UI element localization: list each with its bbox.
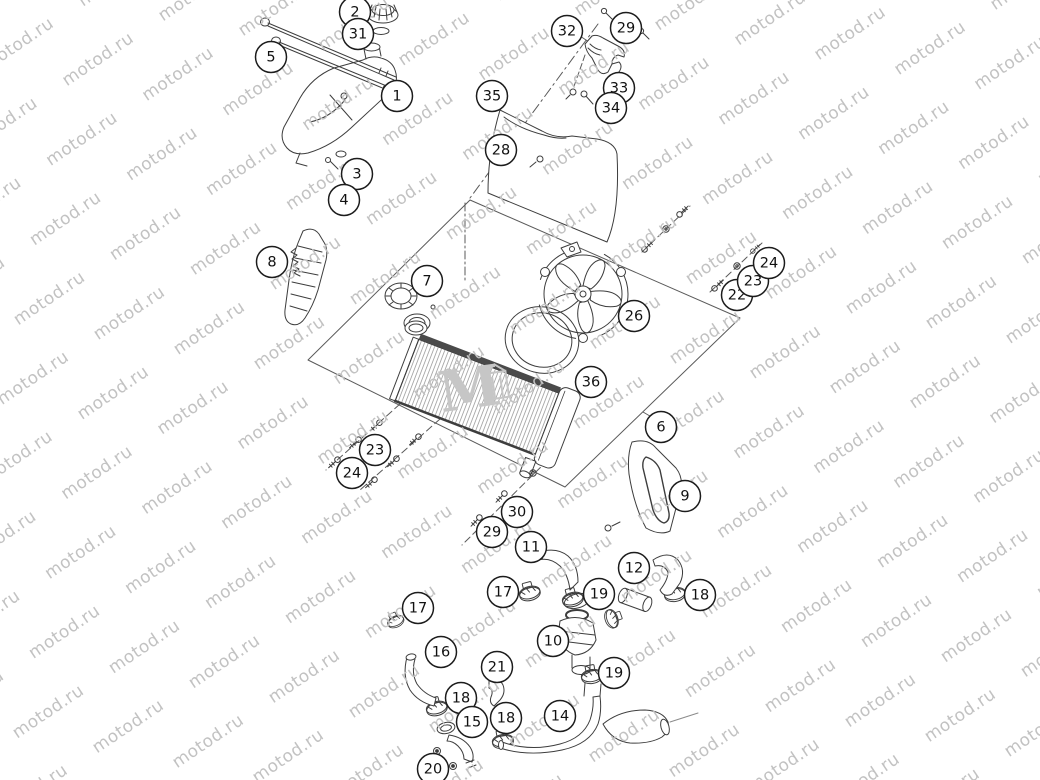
watermark-text: motod.ru: [26, 188, 105, 250]
watermark-text: motod.ru: [74, 362, 153, 424]
watermark-text: motod.ru: [0, 427, 57, 489]
callout-number: 29: [483, 525, 501, 541]
watermark-text: motod.ru: [873, 510, 952, 572]
watermark-text: motod.ru: [1033, 540, 1040, 602]
watermark-text: motod.ru: [1034, 126, 1040, 188]
callout-19: 19: [584, 579, 615, 610]
watermark-text: motod.ru: [0, 506, 40, 568]
watermark-text: motod.ru: [665, 719, 744, 780]
watermark-text: motod.ru: [186, 217, 265, 279]
watermark-text: motod.ru: [778, 162, 857, 224]
watermark-text: motod.ru: [858, 176, 937, 238]
watermark-text: motod.ru: [233, 391, 312, 453]
watermark-text: motod.ru: [137, 456, 216, 518]
watermark-text: motod.ru: [954, 112, 1033, 174]
watermark-text: motod.ru: [217, 471, 296, 533]
watermark-text: motod.ru: [904, 764, 983, 780]
watermark-text: motod.ru: [0, 173, 25, 235]
cooling-system-exploded-diagram: motod.rumotod.rumotod.rumotod.rumotod.ru…: [0, 0, 1040, 780]
callout-number: 34: [602, 101, 620, 117]
watermark-logo: M: [434, 351, 512, 426]
watermark-text: motod.ru: [794, 82, 873, 144]
callout-number: 28: [492, 143, 510, 159]
watermark-text: motod.ru: [90, 282, 169, 344]
watermark-text: motod.ru: [0, 666, 8, 728]
callout-18: 18: [491, 703, 522, 734]
watermark-text: motod.ru: [745, 734, 824, 780]
watermark-text: motod.ru: [761, 655, 840, 717]
callout-number: 10: [544, 634, 562, 650]
callout-number: 1: [392, 89, 401, 105]
callout-1: 1: [382, 81, 413, 112]
watermark-text: motod.ru: [9, 681, 88, 743]
callout-number: 21: [488, 660, 506, 676]
watermark-text: motod.ru: [729, 401, 808, 463]
watermark-text: motod.ru: [987, 0, 1040, 15]
watermark-text: motod.ru: [825, 749, 904, 780]
watermark-text: motod.ru: [202, 138, 281, 200]
callout-24: 24: [754, 248, 785, 279]
callout-29: 29: [477, 517, 508, 548]
watermark-text: motod.ru: [155, 0, 234, 26]
callout-number: 32: [558, 24, 576, 40]
callout-number: 9: [680, 489, 689, 505]
watermark-text: motod.ru: [89, 695, 168, 757]
watermark-text: motod.ru: [1001, 699, 1040, 761]
watermark-text: motod.ru: [0, 347, 73, 409]
callout-23: 23: [360, 435, 391, 466]
watermark-text: motod.ru: [698, 147, 777, 209]
callout-number: 11: [522, 540, 540, 556]
callout-number: 17: [494, 585, 512, 601]
watermark-text: motod.ru: [218, 58, 297, 120]
watermark-text: motod.ru: [681, 640, 760, 702]
callout-17: 17: [488, 577, 519, 608]
watermark-text: motod.ru: [265, 645, 344, 707]
callout-5: 5: [256, 42, 287, 73]
watermark-text: motod.ru: [154, 377, 233, 439]
callout-26: 26: [619, 301, 650, 332]
watermark-text: motod.ru: [953, 525, 1032, 587]
watermark-text: motod.ru: [826, 336, 905, 398]
callout-10: 10: [538, 626, 569, 657]
callout-number: 5: [266, 50, 275, 66]
watermark-text: motod.ru: [75, 0, 154, 11]
callout-28: 28: [486, 135, 517, 166]
watermark-text: motod.ru: [122, 123, 201, 185]
watermark-text: motod.ru: [810, 2, 889, 64]
watermark-text: motod.ru: [809, 416, 888, 478]
watermark-text: motod.ru: [969, 445, 1040, 507]
watermark-text: motod.ru: [442, 182, 521, 244]
watermark-text: motod.ru: [874, 97, 953, 159]
callout-number: 19: [590, 587, 608, 603]
callout-7: 7: [412, 266, 443, 297]
callout-number: 18: [691, 588, 709, 604]
watermark-text: motod.ru: [121, 536, 200, 598]
watermark-text: motod.ru: [0, 760, 72, 780]
callout-16: 16: [426, 637, 457, 668]
watermark-text: motod.ru: [58, 28, 137, 90]
callout-number: 4: [339, 193, 348, 209]
callout-number: 24: [343, 466, 361, 482]
watermark-text: motod.ru: [491, 0, 570, 5]
callout-number: 3: [352, 167, 361, 183]
watermark-text: motod.ru: [57, 442, 136, 504]
callout-30: 30: [502, 497, 533, 528]
watermark-text: motod.ru: [921, 684, 1000, 746]
watermark-text: motod.ru: [714, 67, 793, 129]
watermark-text: motod.ru: [0, 93, 41, 155]
watermark-text: motod.ru: [185, 631, 264, 693]
watermark-text: motod.ru: [281, 566, 360, 628]
watermark-text: motod.ru: [393, 421, 472, 483]
callout-number: 16: [432, 645, 450, 661]
callout-number: 8: [267, 255, 276, 271]
cap-seal: [373, 28, 389, 35]
callout-24: 24: [337, 458, 368, 489]
callout-15: 15: [457, 707, 488, 738]
watermark-text: motod.ru: [0, 13, 58, 75]
callout-number: 19: [605, 666, 623, 682]
callout-29: 29: [611, 13, 642, 44]
callout-number: 14: [551, 709, 569, 725]
watermark-text: motod.ru: [906, 351, 985, 413]
callout-36: 36: [576, 367, 607, 398]
callout-34: 34: [596, 93, 627, 124]
callout-number: 35: [483, 89, 501, 105]
callout-20: 20: [418, 754, 449, 780]
watermark-text: motod.ru: [201, 551, 280, 613]
callout-number: 29: [617, 21, 635, 37]
watermark-text: motod.ru: [488, 770, 567, 780]
callout-number: 30: [508, 505, 526, 521]
watermark-text: motod.ru: [889, 430, 968, 492]
watermark-text: motod.ru: [106, 202, 185, 264]
callout-32: 32: [552, 16, 583, 47]
watermark-text: motod.ru: [329, 740, 408, 780]
watermark-text: motod.ru: [970, 32, 1040, 94]
watermark-text: motod.ru: [651, 0, 730, 35]
callout-number: 7: [422, 274, 431, 290]
watermark-text: motod.ru: [169, 710, 248, 772]
watermark-text: motod.ru: [938, 191, 1017, 253]
watermark-text: motod.ru: [713, 480, 792, 542]
watermark-text: motod.ru: [841, 669, 920, 731]
watermark-text: motod.ru: [235, 0, 314, 41]
watermark-text: motod.ru: [857, 590, 936, 652]
watermark-text: motod.ru: [377, 501, 456, 563]
callout-35: 35: [477, 81, 508, 112]
callout-11: 11: [516, 532, 547, 563]
callout-4: 4: [329, 185, 360, 216]
watermark-text: motod.ru: [777, 575, 856, 637]
watermark-text: motod.ru: [0, 252, 9, 314]
watermark-text: motod.ru: [793, 495, 872, 557]
watermark-layer: motod.rumotod.rumotod.rumotod.rumotod.ru…: [0, 0, 1040, 780]
callout-12: 12: [619, 553, 650, 584]
watermark-text: motod.ru: [0, 586, 24, 648]
callout-number: 20: [424, 762, 442, 778]
watermark-text: motod.ru: [937, 605, 1016, 667]
watermark-text: motod.ru: [618, 132, 697, 194]
callout-14: 14: [545, 701, 576, 732]
parts-diagram-page: motod.rumotod.rumotod.rumotod.rumotod.ru…: [0, 0, 1040, 780]
watermark-text: motod.ru: [731, 0, 810, 50]
watermark-text: motod.ru: [297, 486, 376, 548]
watermark-text: motod.ru: [890, 17, 969, 79]
watermark-text: motod.ru: [666, 306, 745, 368]
callout-number: 18: [497, 711, 515, 727]
callout-number: 24: [760, 256, 778, 272]
watermark-text: motod.ru: [42, 108, 121, 170]
watermark-text: motod.ru: [394, 8, 473, 70]
callout-number: 15: [463, 715, 481, 731]
callout-number: 6: [656, 420, 665, 436]
watermark-text: motod.ru: [922, 271, 1001, 333]
watermark-text: motod.ru: [746, 321, 825, 383]
callout-8: 8: [257, 247, 288, 278]
watermark-text: motod.ru: [249, 725, 328, 780]
callout-number: 31: [349, 27, 367, 43]
watermark-text: motod.ru: [105, 616, 184, 678]
watermark-text: motod.ru: [1018, 206, 1040, 268]
callout-number: 26: [625, 309, 643, 325]
callout-19: 19: [599, 658, 630, 689]
watermark-text: motod.ru: [634, 52, 713, 114]
watermark-text: motod.ru: [25, 601, 104, 663]
callout-18: 18: [685, 580, 716, 611]
callout-21: 21: [482, 652, 513, 683]
callout-6: 6: [646, 412, 677, 443]
watermark-text: motod.ru: [138, 43, 217, 105]
callout-number: 23: [366, 443, 384, 459]
watermark-text: motod.ru: [170, 297, 249, 359]
watermark-text: motod.ru: [72, 775, 151, 780]
callout-number: 12: [625, 561, 643, 577]
callout-number: 36: [582, 375, 600, 391]
watermark-text: motod.ru: [842, 256, 921, 318]
callout-31: 31: [343, 19, 374, 50]
callout-9: 9: [670, 481, 701, 512]
watermark-text: motod.ru: [986, 365, 1040, 427]
watermark-text: motod.ru: [10, 267, 89, 329]
callout-17: 17: [403, 593, 434, 624]
watermark-text: motod.ru: [1017, 619, 1040, 681]
callout-number: 18: [452, 691, 470, 707]
watermark-text: motod.ru: [1002, 286, 1040, 348]
watermark-text: motod.ru: [41, 521, 120, 583]
watermark-text: motod.ru: [474, 23, 553, 85]
callout-number: 17: [409, 601, 427, 617]
watermark-text: motod.ru: [362, 167, 441, 229]
